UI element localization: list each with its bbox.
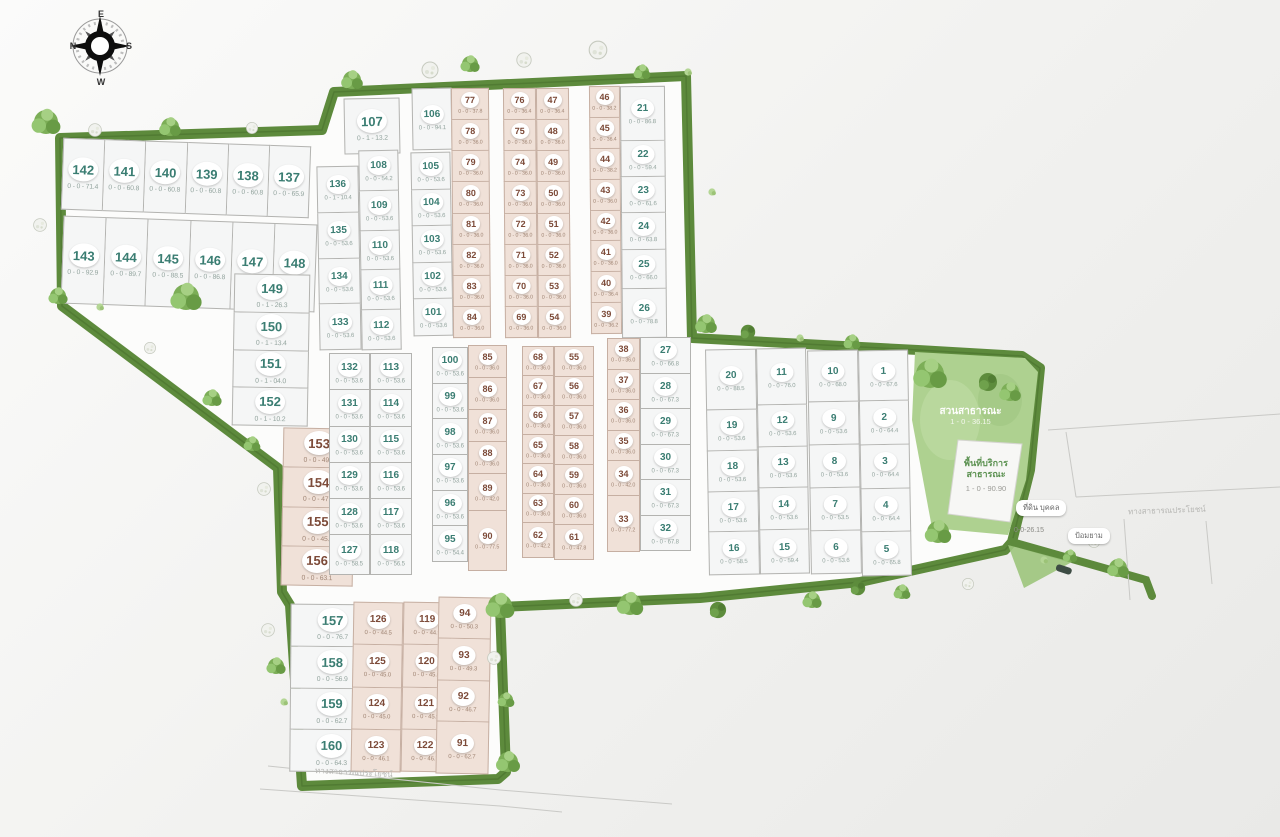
plot-area: 0 - 0 - 50.3 [451, 623, 478, 630]
plot-area: 0 - 0 - 53.6 [377, 377, 404, 384]
plot-93: 930 - 0 - 49.3 [437, 639, 491, 681]
plot-area: 0 - 0 - 46.7 [411, 755, 438, 762]
plot-area: 0 - 0 - 36.0 [476, 397, 500, 403]
plot-group-col46: 460 - 0 - 38.2450 - 0 - 36.4440 - 0 - 38… [589, 86, 622, 334]
plot-number: 29 [654, 412, 677, 431]
plot-111: 1110 - 0 - 53.6 [360, 270, 401, 310]
plot-area: 0 - 0 - 36.0 [526, 511, 550, 517]
plot-number: 133 [328, 312, 351, 331]
plot-area: 0 - 0 - 68.0 [819, 381, 846, 388]
plot-area: 0 - 0 - 53.6 [368, 334, 395, 341]
plot-area: 0 - 0 - 53.6 [336, 413, 363, 420]
plot-number: 43 [596, 182, 614, 198]
plot-number: 105 [419, 157, 442, 176]
plot-area: 0 - 0 - 64.4 [871, 427, 898, 434]
plot-area: 0 - 0 - 53.6 [336, 485, 363, 492]
plot-area: 0 - 0 - 67.8 [652, 538, 679, 545]
plot-77: 770 - 0 - 37.8 [451, 88, 489, 120]
plot-number: 63 [529, 495, 547, 511]
plot-number: 146 [195, 247, 226, 272]
plot-area: 0 - 0 - 60.8 [232, 188, 263, 197]
plot-number: 152 [255, 389, 285, 414]
plot-area: 0 - 0 - 53.6 [326, 286, 353, 293]
plot-number: 83 [463, 278, 481, 294]
plot-number: 32 [654, 519, 677, 538]
plot-number: 113 [380, 358, 403, 377]
plot-17: 170 - 0 - 53.6 [708, 491, 760, 533]
plot-85: 850 - 0 - 36.0 [468, 345, 507, 378]
plot-number: 48 [544, 123, 562, 139]
plot-area: 0 - 0 - 42.0 [612, 482, 636, 488]
plot-132: 1320 - 0 - 53.6 [329, 353, 370, 390]
plot-number: 142 [68, 157, 99, 182]
plot-3: 30 - 0 - 64.4 [860, 444, 911, 489]
plot-92: 920 - 0 - 46.7 [436, 680, 490, 722]
plot-98: 980 - 0 - 53.6 [432, 419, 468, 455]
plot-35: 350 - 0 - 36.0 [607, 431, 640, 462]
plot-area: 0 - 0 - 38.2 [593, 105, 617, 111]
plot-number: 71 [512, 247, 530, 263]
road-label-bottom: ทางสาธารณประโยชน์ [315, 764, 393, 781]
plot-area: 0 - 0 - 36.0 [562, 394, 586, 400]
plot-area: 0 - 0 - 53.6 [436, 406, 463, 413]
plot-number: 115 [380, 430, 403, 449]
plot-107: 1070 - 1 - 13.2 [344, 98, 401, 155]
plot-15: 150 - 0 - 59.4 [759, 530, 810, 575]
plot-number: 148 [279, 250, 310, 275]
plot-group-col76: 760 - 0 - 36.4750 - 0 - 36.0740 - 0 - 36… [503, 88, 538, 338]
plot-area: 0 - 0 - 53.6 [769, 430, 796, 437]
plot-group-col47: 470 - 0 - 36.4480 - 0 - 36.0490 - 0 - 36… [536, 88, 571, 338]
plot-area: 0 - 0 - 36.0 [508, 201, 532, 207]
plot-area: 0 - 0 - 38.2 [593, 167, 617, 173]
plot-group-col94: 940 - 0 - 50.3930 - 0 - 49.3920 - 0 - 46… [435, 597, 491, 775]
plot-number: 119 [416, 609, 439, 628]
plot-29: 290 - 0 - 67.3 [640, 409, 691, 445]
plot-group-col55: 550 - 0 - 36.0560 - 0 - 36.0570 - 0 - 36… [554, 346, 594, 560]
plot-number: 96 [439, 494, 462, 513]
plot-number: 99 [439, 387, 462, 406]
plot-54: 540 - 0 - 36.0 [538, 307, 571, 338]
plot-number: 134 [328, 267, 351, 286]
plot-area: 0 - 0 - 45.9 [412, 713, 439, 720]
plot-number: 127 [338, 541, 361, 560]
plot-area: 0 - 0 - 42.0 [476, 496, 500, 502]
plot-group-107: 1070 - 1 - 13.2 [344, 98, 401, 155]
plot-area: 0 - 0 - 53.6 [820, 428, 847, 435]
plot-number: 118 [380, 541, 403, 560]
plot-number: 111 [369, 276, 392, 295]
plot-number: 40 [597, 275, 615, 291]
plot-area: 0 - 0 - 64.4 [872, 515, 899, 522]
plot-8: 80 - 0 - 53.6 [809, 445, 861, 489]
plot-142: 1420 - 0 - 71.4 [61, 138, 106, 211]
plot-86: 860 - 0 - 36.0 [468, 378, 507, 410]
plot-area: 0 - 0 - 67.6 [870, 380, 897, 387]
plot-number: 76 [510, 91, 528, 107]
plot-number: 128 [338, 503, 361, 522]
plot-103: 1030 - 0 - 53.6 [412, 226, 453, 263]
plot-number: 66 [529, 407, 547, 423]
plot-area: 0 - 0 - 36.0 [459, 201, 483, 207]
plot-36: 360 - 0 - 36.0 [607, 400, 640, 431]
plot-5: 50 - 0 - 65.8 [861, 532, 912, 577]
plot-112: 1120 - 0 - 53.6 [361, 310, 402, 350]
plot-number: 89 [479, 480, 497, 496]
plot-27: 270 - 0 - 66.8 [640, 337, 691, 374]
plot-area: 0 - 0 - 36.0 [476, 429, 500, 435]
plot-number: 120 [415, 652, 438, 671]
plot-area: 0 - 0 - 53.6 [377, 522, 404, 529]
service-area [948, 440, 1022, 522]
plot-area: 0 - 0 - 53.6 [417, 176, 444, 183]
plot-area: 0 - 0 - 56.5 [377, 560, 404, 567]
plot-129: 1290 - 0 - 53.6 [329, 463, 370, 499]
plot-group-col113: 1130 - 0 - 53.61140 - 0 - 53.61150 - 0 -… [370, 353, 412, 575]
car [1055, 564, 1072, 576]
plot-number: 28 [654, 377, 677, 396]
plot-number: 16 [722, 539, 745, 558]
plot-area: 0 - 0 - 88.5 [152, 271, 183, 280]
plot-number: 156 [302, 549, 332, 574]
plot-number: 98 [439, 423, 462, 442]
plot-number: 64 [529, 466, 547, 482]
plot-area: 0 - 0 - 60.8 [191, 186, 222, 195]
plot-number: 9 [822, 409, 845, 428]
plot-area: 0 - 0 - 59.4 [629, 163, 656, 170]
plot-number: 78 [461, 123, 479, 139]
plot-group-col38: 380 - 0 - 36.0370 - 0 - 36.0360 - 0 - 36… [607, 338, 640, 552]
plot-60: 600 - 0 - 36.0 [554, 495, 594, 525]
plot-number: 11 [770, 362, 793, 381]
plot-area: 0 - 0 - 71.4 [67, 182, 98, 191]
plot-number: 138 [232, 163, 263, 188]
plot-number: 88 [479, 445, 497, 461]
plot-number: 102 [421, 266, 444, 285]
plot-79: 790 - 0 - 36.0 [451, 151, 489, 182]
plot-area: 0 - 0 - 66.0 [630, 274, 657, 281]
entrance-road [1012, 542, 1152, 596]
plot-area: 0 - 0 - 36.0 [526, 453, 550, 459]
plot-48: 480 - 0 - 36.0 [536, 120, 569, 151]
plot-101: 1010 - 0 - 53.6 [413, 299, 454, 336]
plot-number: 93 [452, 646, 475, 665]
plot-area: 0 - 1 - 04.0 [255, 377, 286, 385]
plot-40: 400 - 0 - 36.4 [591, 272, 622, 303]
plot-50: 500 - 0 - 36.0 [537, 182, 570, 213]
plot-number: 79 [461, 154, 479, 170]
plot-group-rowA: 1420 - 0 - 71.41410 - 0 - 60.81400 - 0 -… [61, 138, 311, 219]
plot-150: 1500 - 1 - 13.4 [233, 312, 310, 351]
plot-area: 0 - 0 - 45.0 [363, 713, 390, 720]
plot-34: 340 - 0 - 42.0 [607, 461, 640, 496]
plot-63: 630 - 0 - 36.0 [522, 494, 554, 523]
plot-73: 730 - 0 - 36.0 [504, 182, 537, 213]
plot-117: 1170 - 0 - 53.6 [370, 499, 412, 535]
plot-number: 143 [68, 243, 99, 268]
plot-area: 0 - 0 - 53.6 [418, 249, 445, 256]
plot-number: 144 [111, 244, 142, 269]
plot-102: 1020 - 0 - 53.6 [412, 262, 453, 299]
plot-43: 430 - 0 - 36.0 [590, 179, 621, 210]
plot-area: 0 - 0 - 53.5 [822, 514, 849, 521]
plot-number: 104 [420, 193, 443, 212]
plot-area: 0 - 0 - 53.6 [823, 557, 850, 564]
plot-area: 0 - 0 - 36.0 [526, 423, 550, 429]
plot-area: 0 - 0 - 53.6 [325, 240, 352, 247]
plot-number: 45 [596, 120, 614, 136]
plot-area: 0 - 0 - 36.0 [562, 513, 586, 519]
plot-number: 135 [327, 221, 350, 240]
plot-23: 230 - 0 - 61.6 [621, 177, 666, 214]
plot-46: 460 - 0 - 38.2 [589, 86, 620, 118]
plot-37: 370 - 0 - 36.0 [607, 370, 640, 401]
plot-number: 8 [823, 452, 846, 471]
plot-97: 970 - 0 - 53.6 [432, 455, 468, 491]
plot-area: 0 - 0 - 36.0 [508, 139, 532, 145]
plot-74: 740 - 0 - 36.0 [503, 151, 536, 182]
plot-20: 200 - 0 - 88.5 [705, 349, 757, 411]
plot-group-col11: 110 - 0 - 76.0120 - 0 - 53.6130 - 0 - 53… [756, 348, 810, 575]
plot-127: 1270 - 0 - 58.5 [329, 535, 370, 575]
plot-137: 1370 - 0 - 65.9 [268, 145, 312, 218]
plot-area: 0 - 0 - 63.1 [301, 574, 332, 582]
plot-133: 1330 - 0 - 53.6 [319, 304, 362, 350]
plot-number: 54 [545, 309, 563, 325]
plot-area: 0 - 0 - 67.3 [652, 502, 679, 509]
compass-s: S [126, 41, 132, 51]
plot-number: 49 [544, 154, 562, 170]
plot-26: 260 - 0 - 78.8 [622, 289, 667, 338]
plot-144: 1440 - 0 - 89.7 [104, 217, 149, 306]
plot-area: 0 - 0 - 76.0 [768, 381, 795, 388]
plot-number: 94 [453, 604, 476, 623]
plot-number: 10 [821, 362, 844, 381]
plot-area: 0 - 0 - 36.0 [542, 263, 566, 269]
plot-9: 90 - 0 - 53.6 [808, 402, 860, 446]
compass-w: W [97, 77, 106, 87]
plot-87: 870 - 0 - 36.0 [468, 410, 507, 442]
plot-131: 1310 - 0 - 53.6 [329, 390, 370, 426]
plot-number: 160 [316, 733, 346, 757]
plot-149: 1490 - 1 - 26.3 [234, 273, 311, 313]
plot-47: 470 - 0 - 36.4 [536, 88, 569, 120]
plot-area: 0 - 0 - 42.2 [526, 543, 550, 549]
plot-area: 0 - 0 - 36.0 [612, 388, 636, 394]
plot-89: 890 - 0 - 42.0 [468, 474, 507, 511]
plot-number: 67 [529, 378, 547, 394]
plot-28: 280 - 0 - 67.3 [640, 374, 691, 410]
plot-113: 1130 - 0 - 53.6 [370, 353, 412, 390]
plot-number: 80 [462, 185, 480, 201]
plot-58: 580 - 0 - 36.0 [554, 436, 594, 466]
plot-area: 0 - 0 - 44.9 [413, 628, 440, 635]
plot-area: 0 - 0 - 45.0 [413, 671, 440, 678]
plot-area: 0 - 0 - 89.7 [110, 269, 141, 278]
plot-number: 84 [463, 309, 481, 325]
plot-95: 950 - 0 - 54.4 [432, 526, 468, 562]
plot-number: 137 [274, 164, 305, 189]
plot-area: 0 - 0 - 53.6 [327, 331, 354, 338]
plot-number: 6 [824, 538, 847, 557]
plot-114: 1140 - 0 - 53.6 [370, 390, 412, 426]
plot-number: 114 [380, 394, 403, 413]
plot-area: 0 - 0 - 67.3 [652, 396, 679, 403]
plot-90: 900 - 0 - 77.5 [468, 511, 507, 571]
plot-number: 116 [380, 466, 403, 485]
plot-72: 720 - 0 - 36.0 [504, 213, 537, 244]
plot-138: 1380 - 0 - 60.8 [226, 143, 270, 216]
plot-16: 160 - 0 - 58.5 [708, 532, 760, 576]
plot-group-col149: 1490 - 1 - 26.31500 - 1 - 13.41510 - 1 -… [232, 273, 311, 426]
plot-area: 0 - 0 - 36.0 [459, 232, 483, 238]
plot-area: 0 - 0 - 36.0 [508, 170, 532, 176]
plot-area: 0 - 0 - 59.4 [771, 556, 798, 563]
plot-number: 132 [338, 358, 361, 377]
plot-area: 0 - 0 - 53.6 [336, 449, 363, 456]
plot-78: 780 - 0 - 36.0 [451, 120, 489, 151]
plot-number: 159 [317, 692, 347, 716]
plot-area: 0 - 0 - 53.6 [336, 377, 363, 384]
plot-number: 97 [439, 458, 462, 477]
plot-area: 0 - 0 - 53.6 [821, 471, 848, 478]
plot-125: 1250 - 0 - 45.0 [352, 645, 403, 688]
plot-number: 107 [357, 109, 387, 134]
plot-39: 390 - 0 - 36.2 [591, 303, 622, 334]
plot-group-col108: 1080 - 0 - 54.21090 - 0 - 53.61100 - 0 -… [358, 150, 401, 351]
plot-area: 0 - 0 - 62.7 [449, 752, 476, 759]
plot-number: 26 [633, 299, 656, 318]
plot-number: 31 [654, 483, 677, 502]
plot-45: 450 - 0 - 36.4 [589, 118, 620, 149]
compass-rose: E N S W [70, 9, 132, 87]
plot-42: 420 - 0 - 36.0 [590, 210, 621, 241]
plot-22: 220 - 0 - 59.4 [620, 141, 665, 178]
plot-area: 0 - 0 - 36.0 [593, 198, 617, 204]
plot-area: 0 - 0 - 67.3 [652, 431, 679, 438]
spur-area-label: 0-0-26.15 [1014, 527, 1044, 534]
plot-71: 710 - 0 - 36.0 [504, 244, 537, 275]
plot-19: 190 - 0 - 53.6 [706, 410, 758, 452]
plot-24: 240 - 0 - 63.8 [621, 213, 666, 250]
plot-area: 0 - 0 - 53.6 [367, 295, 394, 302]
plot-area: 0 - 0 - 53.6 [436, 513, 463, 520]
plot-number: 52 [545, 247, 563, 263]
plot-group-106: 1060 - 0 - 94.1 [411, 88, 452, 151]
plot-number: 149 [257, 276, 287, 301]
plot-80: 800 - 0 - 36.0 [452, 182, 490, 213]
plot-area: 0 - 0 - 46.1 [362, 755, 389, 762]
plot-area: 0 - 0 - 53.6 [419, 285, 446, 292]
plot-30: 300 - 0 - 67.3 [640, 445, 691, 481]
plot-38: 380 - 0 - 36.0 [607, 338, 640, 370]
plot-area: 0 - 0 - 62.7 [316, 717, 347, 725]
plot-area: 0 - 0 - 46.7 [449, 706, 476, 713]
plot-104: 1040 - 0 - 53.6 [411, 189, 452, 226]
plot-number: 39 [597, 305, 615, 321]
plot-area: 0 - 1 - 26.3 [256, 301, 287, 309]
plot-106: 1060 - 0 - 94.1 [411, 88, 452, 151]
plot-area: 0 - 0 - 65.9 [273, 189, 304, 198]
compass-n: N [70, 41, 77, 51]
plot-number: 129 [338, 466, 361, 485]
plot-area: 0 - 0 - 53.6 [719, 476, 746, 483]
plot-83: 830 - 0 - 36.0 [453, 276, 491, 307]
plot-area: 0 - 1 - 10.2 [254, 414, 285, 422]
plot-area: 0 - 0 - 54.2 [365, 175, 392, 182]
plot-31: 310 - 0 - 67.3 [640, 480, 691, 516]
plot-64: 640 - 0 - 36.0 [522, 464, 554, 493]
plot-number: 42 [597, 213, 615, 229]
plot-21: 210 - 0 - 86.8 [620, 86, 665, 141]
plot-number: 59 [565, 467, 583, 483]
plot-area: 0 - 0 - 36.0 [562, 424, 586, 430]
plot-13: 130 - 0 - 53.6 [758, 446, 809, 489]
plot-area: 0 - 0 - 78.8 [631, 318, 658, 325]
plot-49: 490 - 0 - 36.0 [536, 151, 569, 182]
plot-area: 0 - 0 - 36.0 [562, 365, 586, 371]
plot-area: 0 - 0 - 49.3 [450, 664, 477, 671]
plot-number: 124 [365, 694, 388, 713]
plot-14: 140 - 0 - 53.6 [758, 488, 809, 531]
plot-61: 610 - 0 - 47.8 [554, 525, 594, 560]
plot-number: 147 [237, 249, 268, 274]
plot-area: 0 - 0 - 66.8 [652, 360, 679, 367]
plot-33: 330 - 0 - 77.2 [607, 496, 640, 552]
plot-number: 157 [317, 608, 347, 632]
plot-area: 0 - 0 - 54.4 [436, 549, 463, 556]
plot-41: 410 - 0 - 36.0 [590, 241, 621, 272]
plot-130: 1300 - 0 - 53.6 [329, 427, 370, 463]
plot-area: 0 - 0 - 37.8 [458, 107, 482, 113]
plot-44: 440 - 0 - 38.2 [589, 149, 620, 180]
plot-141: 1410 - 0 - 60.8 [103, 139, 147, 212]
plot-145: 1450 - 0 - 88.5 [146, 219, 191, 308]
plot-91: 910 - 0 - 62.7 [435, 722, 489, 775]
plot-area: 0 - 0 - 53.6 [366, 255, 393, 262]
plot-number: 56 [565, 378, 583, 394]
plot-number: 87 [479, 413, 497, 429]
road-label-right: ทางสาธารณประโยชน์ [1128, 503, 1206, 519]
plot-number: 86 [479, 381, 497, 397]
plot-area: 0 - 0 - 36.2 [595, 321, 619, 327]
plot-7: 70 - 0 - 53.5 [809, 488, 861, 532]
plot-number: 101 [422, 303, 445, 322]
plot-number: 46 [595, 89, 613, 105]
plot-number: 151 [256, 352, 286, 377]
plot-10: 100 - 0 - 68.0 [807, 350, 859, 403]
plot-area: 0 - 0 - 53.6 [420, 322, 447, 329]
plot-area: 0 - 0 - 36.0 [509, 294, 533, 300]
plot-1: 10 - 0 - 67.6 [858, 350, 909, 402]
plot-area: 0 - 0 - 53.6 [770, 514, 797, 521]
service-area-label-line1: พื้นที่บริการ [950, 458, 1022, 469]
plot-number: 51 [545, 216, 563, 232]
plot-number: 22 [631, 144, 654, 163]
entrance-green [1008, 545, 1072, 588]
plot-area: 0 - 0 - 36.0 [594, 260, 618, 266]
plot-67: 670 - 0 - 36.0 [522, 376, 554, 405]
plot-84: 840 - 0 - 36.0 [453, 307, 491, 338]
plot-number: 38 [615, 341, 633, 357]
plot-number: 130 [338, 430, 361, 449]
plot-area: 0 - 0 - 45.0 [364, 671, 391, 678]
plot-area: 0 - 0 - 53.6 [770, 472, 797, 479]
plot-area: 0 - 0 - 53.6 [436, 370, 463, 377]
plot-number: 20 [719, 366, 742, 385]
plot-area: 0 - 0 - 47.8 [562, 545, 586, 551]
plot-group-col85: 850 - 0 - 36.0860 - 0 - 36.0870 - 0 - 36… [468, 345, 507, 571]
